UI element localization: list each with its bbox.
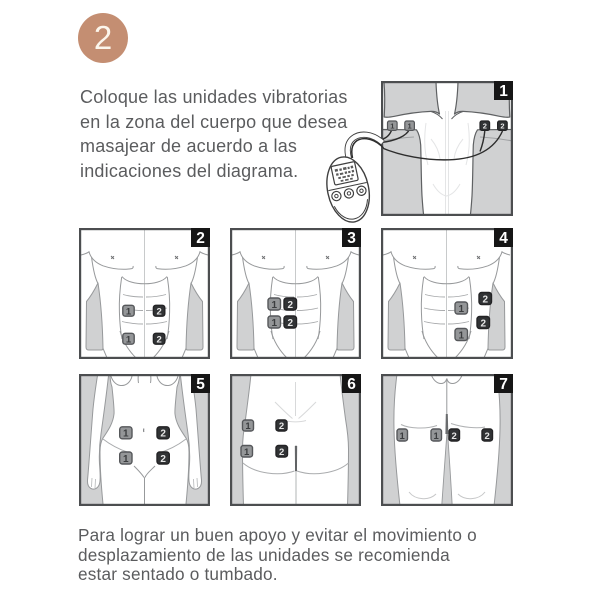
svg-text:1: 1 xyxy=(126,335,132,346)
svg-text:2: 2 xyxy=(156,335,161,346)
svg-text:1: 1 xyxy=(499,83,508,100)
svg-text:2: 2 xyxy=(500,122,504,131)
svg-text:1: 1 xyxy=(272,300,278,311)
svg-text:1: 1 xyxy=(245,421,251,432)
svg-text:2: 2 xyxy=(279,421,284,432)
svg-text:4: 4 xyxy=(499,230,508,247)
svg-text:5: 5 xyxy=(196,376,205,393)
svg-text:2: 2 xyxy=(279,447,284,458)
svg-text:2: 2 xyxy=(160,429,166,440)
svg-text:2: 2 xyxy=(288,300,294,311)
svg-text:1: 1 xyxy=(459,304,465,315)
svg-text:1: 1 xyxy=(408,122,412,131)
svg-text:1: 1 xyxy=(459,330,465,341)
svg-text:2: 2 xyxy=(483,122,487,131)
svg-text:1: 1 xyxy=(272,318,278,329)
svg-text:2: 2 xyxy=(196,230,205,247)
svg-text:1: 1 xyxy=(126,307,132,318)
svg-text:2: 2 xyxy=(452,431,457,442)
svg-text:2: 2 xyxy=(288,318,294,329)
svg-text:1: 1 xyxy=(434,431,440,442)
svg-text:1: 1 xyxy=(123,429,129,440)
svg-text:1: 1 xyxy=(123,454,129,465)
svg-text:2: 2 xyxy=(160,454,166,465)
svg-text:7: 7 xyxy=(499,376,508,393)
svg-text:2: 2 xyxy=(485,431,490,442)
svg-text:2: 2 xyxy=(156,307,161,318)
svg-text:2: 2 xyxy=(483,294,489,305)
svg-text:2: 2 xyxy=(481,318,487,329)
svg-text:6: 6 xyxy=(347,376,356,393)
svg-text:1: 1 xyxy=(400,431,406,442)
svg-text:1: 1 xyxy=(244,447,250,458)
